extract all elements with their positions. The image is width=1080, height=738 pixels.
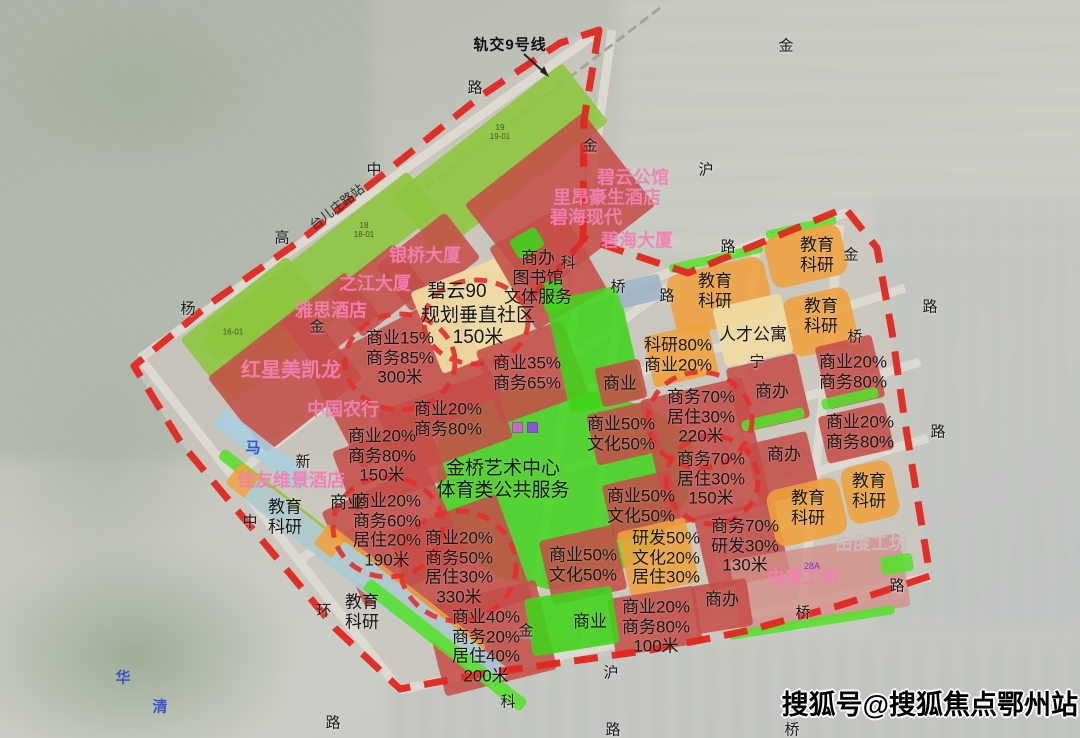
- metro-arrowhead: [540, 66, 549, 77]
- boundary-connector: [528, 240, 583, 300]
- watermark: 搜狐号@搜狐焦点鄂州站: [782, 683, 1078, 722]
- planning-boundary: [134, 30, 930, 689]
- planning-map: 轨交9号线 台儿庄路站 商业15% 商务85% 300米 商业35% 商务65%…: [0, 0, 1080, 738]
- boundary-overlay: [0, 0, 1080, 738]
- radius-circles: [333, 280, 758, 621]
